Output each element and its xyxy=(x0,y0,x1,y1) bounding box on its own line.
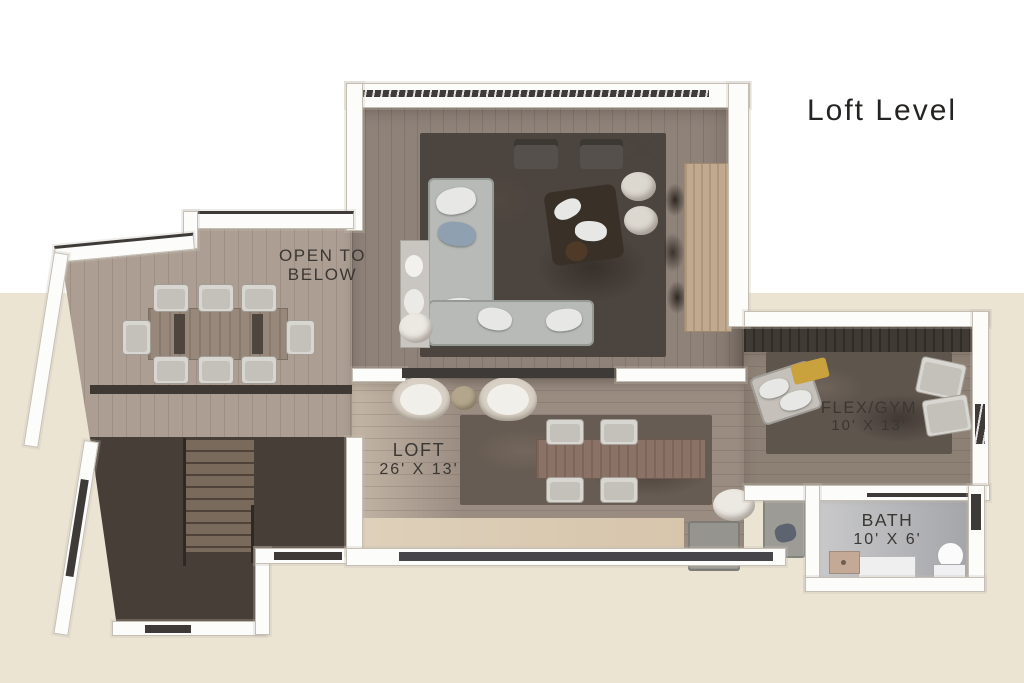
living-right-wall xyxy=(728,83,749,327)
open-to-below-label: OPEN TO BELOW xyxy=(255,246,390,284)
wood-console xyxy=(684,163,732,332)
bath-bottom-wall xyxy=(805,577,985,592)
vanity-counter xyxy=(858,556,916,578)
dining-top-wall xyxy=(185,211,354,229)
loft-divider-dark-wall xyxy=(402,368,617,378)
bath-label: BATH 10' X 6' xyxy=(830,511,945,549)
dining-chair xyxy=(286,320,315,355)
stair-railing xyxy=(251,505,254,563)
floorplan-page: Loft Level OPEN TO BELOW LOFT 26' X 13' … xyxy=(0,0,1024,683)
bath-left-wall xyxy=(805,485,820,590)
stair-step-wall xyxy=(255,548,354,564)
bath-top-wall xyxy=(744,485,990,501)
page-title: Loft Level xyxy=(782,94,982,128)
flex-top-wall xyxy=(744,311,990,327)
loft-chair xyxy=(600,419,638,445)
open-to-below-edge xyxy=(90,385,352,394)
loft-name: LOFT xyxy=(358,441,480,460)
flex-gym-dims: 10' X 13' xyxy=(799,417,939,435)
dining-chair xyxy=(153,356,189,384)
dining-chair xyxy=(241,284,277,312)
loft-chair xyxy=(546,419,584,445)
stair-bottom-wall xyxy=(112,621,266,636)
dining-chair xyxy=(153,284,189,312)
decor-x-stool xyxy=(622,134,660,164)
dining-chair xyxy=(241,356,277,384)
loft-divider-wall-right xyxy=(616,368,746,382)
round-side-table xyxy=(451,386,477,410)
stair-railing xyxy=(183,438,186,566)
cream-pouf-2 xyxy=(624,206,658,235)
open-to-below-line2: BELOW xyxy=(255,265,390,284)
flex-gym-label: FLEX/GYM 10' X 13' xyxy=(799,399,939,435)
bath-name: BATH xyxy=(830,511,945,530)
loft-dims: 26' X 13' xyxy=(358,460,480,479)
flex-right-wall xyxy=(972,311,989,499)
white-pouf-living xyxy=(399,313,433,343)
plant-shadow-strip xyxy=(664,170,686,320)
lounge-chair-2 xyxy=(580,139,623,169)
window-band xyxy=(359,90,709,97)
living-left-wall xyxy=(346,83,363,231)
bath-dims: 10' X 6' xyxy=(830,530,945,549)
barrel-chair-1 xyxy=(392,377,450,421)
loft-chair xyxy=(600,477,638,503)
lounge-chair-1 xyxy=(514,139,558,169)
sectional-sofa-horizontal xyxy=(428,300,594,346)
open-to-below-line1: OPEN TO xyxy=(255,246,390,265)
coffee-table-set xyxy=(543,183,625,266)
staircase-treads xyxy=(186,440,254,552)
barrel-chair-2 xyxy=(479,377,537,421)
loft-table xyxy=(536,439,706,479)
vanity-sink xyxy=(829,551,860,574)
loft-label: LOFT 26' X 13' xyxy=(358,441,480,479)
loft-chair xyxy=(546,477,584,503)
dining-table xyxy=(148,308,288,360)
living-top-wall xyxy=(346,83,750,108)
flex-gym-name: FLEX/GYM xyxy=(799,399,939,417)
dining-chair xyxy=(122,320,151,355)
dining-chair xyxy=(198,284,234,312)
loft-light-floor-band xyxy=(362,518,684,550)
bath-right-wall xyxy=(968,485,985,590)
cream-pouf-1 xyxy=(621,172,656,201)
loft-divider-wall-left xyxy=(352,368,406,382)
loft-bottom-wall xyxy=(346,548,786,566)
flex-media-band xyxy=(744,325,972,352)
dining-chair xyxy=(198,356,234,384)
